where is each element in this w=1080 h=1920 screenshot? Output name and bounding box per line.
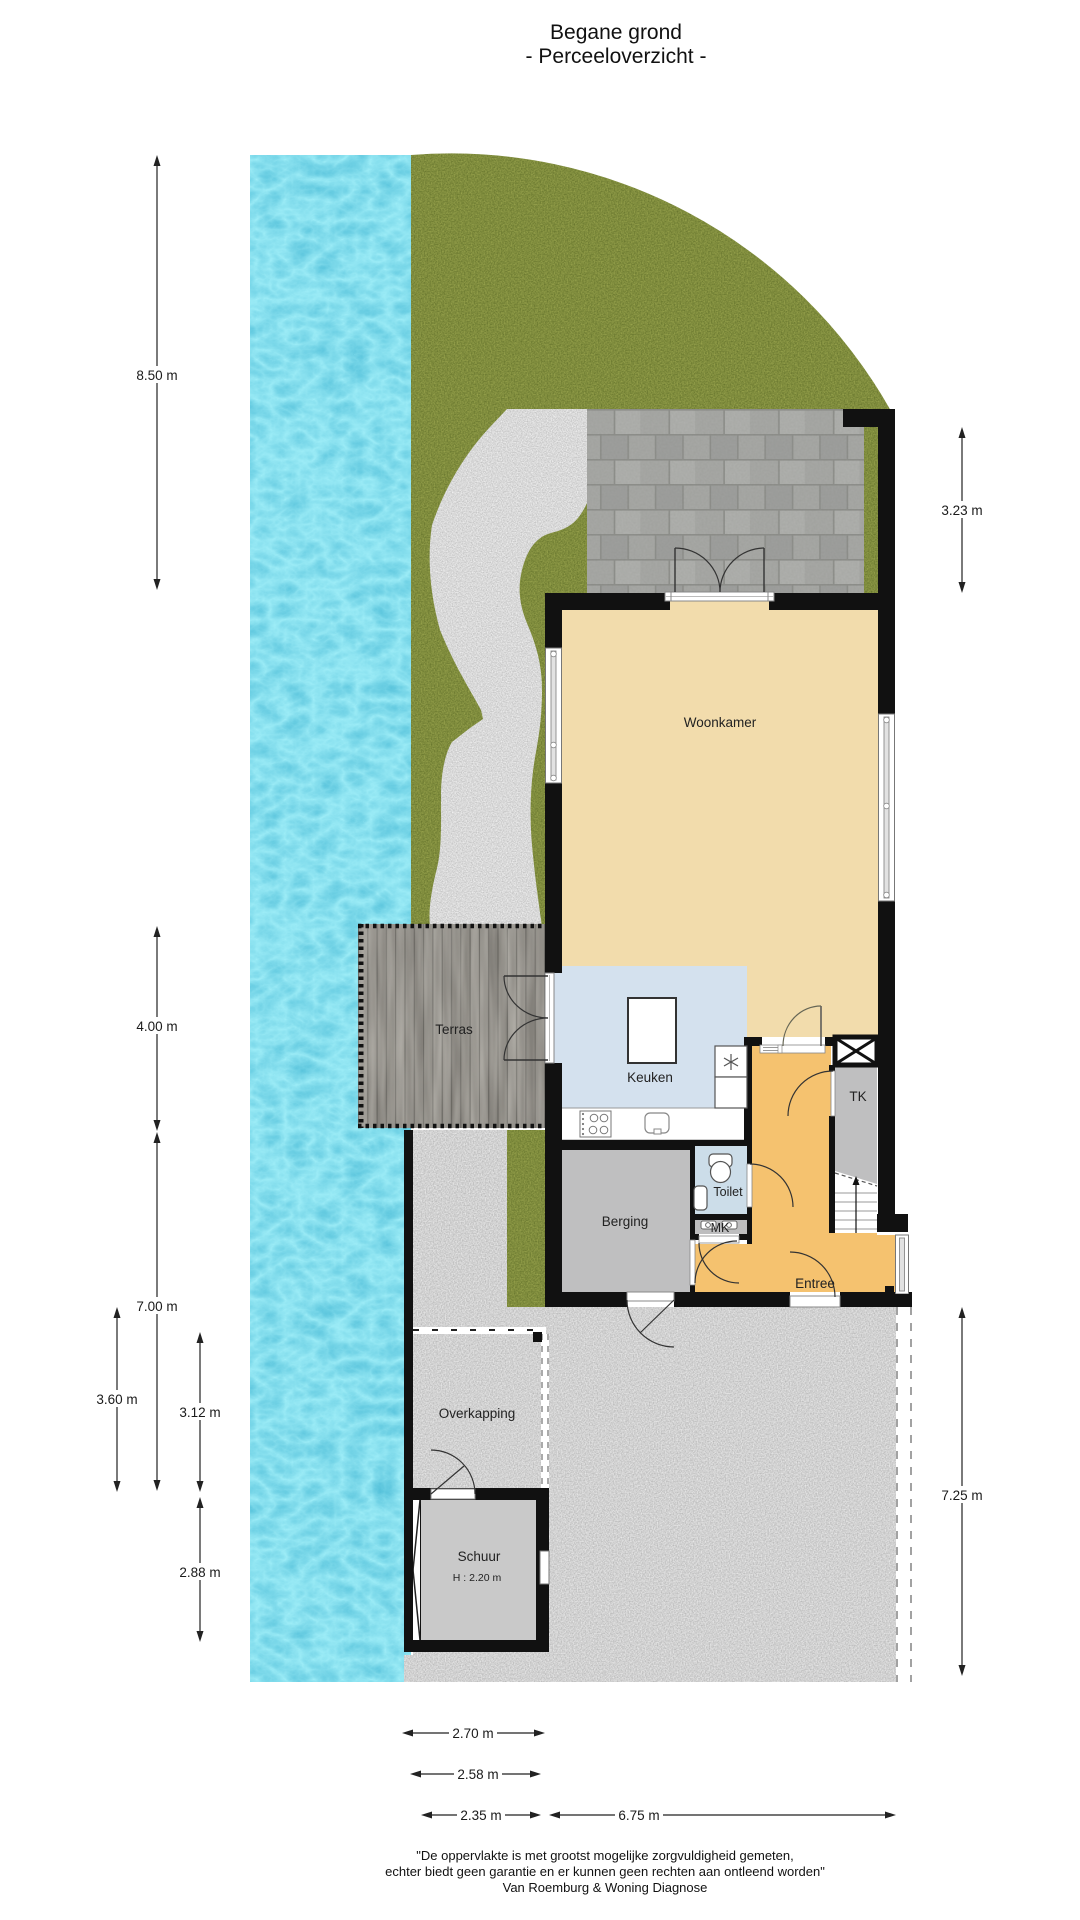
svg-text:Schuur: Schuur	[458, 1549, 501, 1564]
svg-text:8.50 m: 8.50 m	[136, 368, 177, 383]
svg-text:7.25 m: 7.25 m	[941, 1488, 982, 1503]
svg-text:3.12 m: 3.12 m	[179, 1405, 220, 1420]
svg-text:Berging: Berging	[602, 1214, 649, 1229]
svg-text:Overkapping: Overkapping	[439, 1406, 516, 1421]
svg-text:TK: TK	[849, 1089, 866, 1104]
svg-text:Keuken: Keuken	[627, 1070, 673, 1085]
svg-text:2.88 m: 2.88 m	[179, 1565, 220, 1580]
svg-text:H : 2.20 m: H : 2.20 m	[453, 1572, 502, 1584]
svg-text:MK: MK	[711, 1221, 730, 1235]
svg-text:Terras: Terras	[435, 1022, 473, 1037]
svg-text:4.00 m: 4.00 m	[136, 1019, 177, 1034]
svg-text:2.70 m: 2.70 m	[452, 1726, 493, 1741]
svg-text:3.60 m: 3.60 m	[96, 1392, 137, 1407]
svg-text:6.75 m: 6.75 m	[618, 1808, 659, 1823]
svg-text:7.00 m: 7.00 m	[136, 1299, 177, 1314]
svg-text:Toilet: Toilet	[713, 1185, 743, 1199]
svg-text:2.35 m: 2.35 m	[460, 1808, 501, 1823]
svg-text:Woonkamer: Woonkamer	[684, 715, 757, 730]
svg-text:Entree: Entree	[795, 1276, 835, 1291]
svg-text:3.23 m: 3.23 m	[941, 503, 982, 518]
svg-text:2.58 m: 2.58 m	[457, 1767, 498, 1782]
